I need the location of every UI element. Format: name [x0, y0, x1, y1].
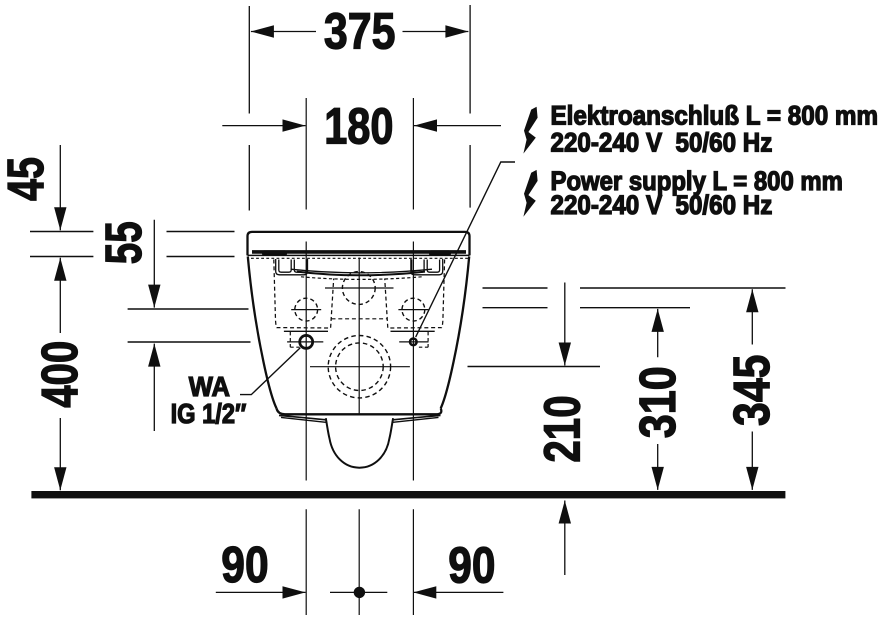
svg-text:345: 345: [723, 355, 780, 426]
svg-text:90: 90: [221, 536, 268, 593]
svg-text:375: 375: [324, 3, 396, 60]
svg-text:Elektroanschluß L = 800 mm: Elektroanschluß L = 800 mm: [551, 100, 879, 130]
svg-text:IG 1/2″: IG 1/2″: [171, 398, 247, 429]
svg-text:55: 55: [95, 221, 152, 264]
svg-text:220-240 V 50/60 Hz: 220-240 V 50/60 Hz: [551, 127, 773, 157]
svg-text:220-240 V 50/60 Hz: 220-240 V 50/60 Hz: [551, 190, 773, 220]
svg-text:310: 310: [629, 366, 686, 438]
svg-text:400: 400: [31, 341, 88, 408]
svg-text:90: 90: [448, 536, 495, 593]
svg-text:180: 180: [324, 98, 393, 155]
svg-text:210: 210: [534, 395, 591, 462]
svg-text:45: 45: [0, 157, 54, 201]
